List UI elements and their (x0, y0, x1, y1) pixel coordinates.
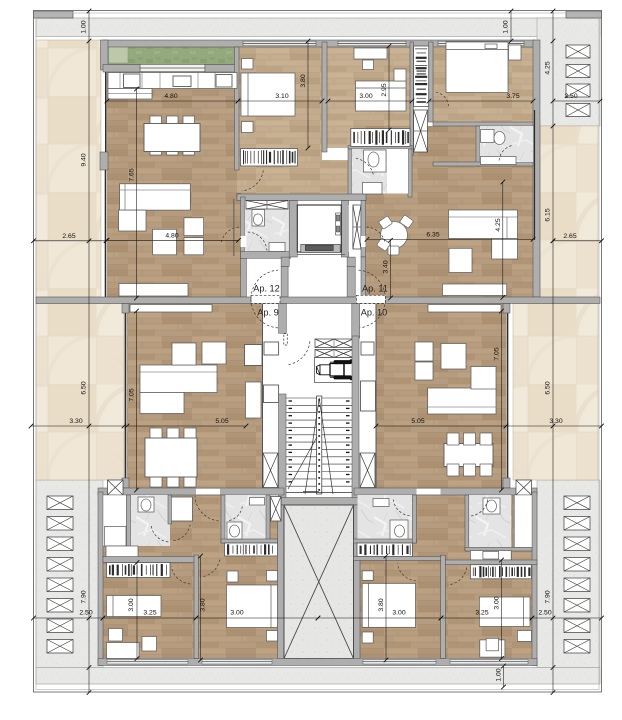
svg-text:3.00: 3.00 (230, 610, 243, 617)
svg-text:4.25: 4.25 (545, 61, 552, 74)
svg-text:6.50: 6.50 (81, 381, 88, 394)
svg-text:7.90: 7.90 (81, 590, 88, 603)
svg-text:3.00: 3.00 (128, 598, 135, 611)
svg-text:5.05: 5.05 (215, 418, 228, 425)
svg-text:2.50: 2.50 (79, 610, 92, 617)
svg-text:2.95: 2.95 (381, 83, 388, 96)
svg-text:5.05: 5.05 (411, 418, 424, 425)
svg-text:2.50: 2.50 (564, 93, 577, 100)
svg-text:3.75: 3.75 (506, 93, 519, 100)
svg-text:Ap. 9: Ap. 9 (257, 308, 278, 318)
svg-text:3.00: 3.00 (392, 610, 405, 617)
svg-text:3.25: 3.25 (475, 610, 488, 617)
svg-text:2.65: 2.65 (62, 233, 75, 240)
svg-text:6.35: 6.35 (426, 232, 439, 239)
svg-text:Ap. 11: Ap. 11 (362, 284, 388, 294)
svg-text:3.00: 3.00 (359, 93, 372, 100)
svg-text:7.05: 7.05 (129, 388, 136, 401)
svg-text:3.80: 3.80 (300, 74, 307, 87)
svg-text:7.05: 7.05 (494, 347, 501, 360)
svg-text:2.50: 2.50 (538, 610, 551, 617)
svg-text:3.80: 3.80 (200, 598, 207, 611)
svg-text:7.90: 7.90 (545, 590, 552, 603)
svg-text:3.30: 3.30 (549, 418, 562, 425)
svg-text:9.40: 9.40 (81, 153, 88, 166)
svg-text:3.40: 3.40 (383, 260, 390, 273)
svg-text:3.00: 3.00 (494, 596, 501, 609)
svg-text:Ap. 12: Ap. 12 (253, 284, 280, 294)
svg-text:1.00: 1.00 (503, 20, 510, 33)
svg-text:7.65: 7.65 (129, 168, 136, 181)
svg-text:4.25: 4.25 (495, 218, 502, 231)
svg-text:2.65: 2.65 (563, 233, 576, 240)
svg-text:4.80: 4.80 (164, 93, 177, 100)
svg-text:1.00: 1.00 (81, 20, 88, 33)
svg-text:3.80: 3.80 (378, 598, 385, 611)
svg-text:6.15: 6.15 (545, 208, 552, 221)
svg-text:3.25: 3.25 (143, 610, 156, 617)
svg-text:3.10: 3.10 (275, 93, 288, 100)
svg-text:Ap. 10: Ap. 10 (361, 308, 388, 318)
svg-text:1.00: 1.00 (496, 668, 503, 681)
svg-text:6.50: 6.50 (545, 381, 552, 394)
svg-text:4.80: 4.80 (165, 232, 178, 239)
svg-text:3.30: 3.30 (69, 418, 82, 425)
